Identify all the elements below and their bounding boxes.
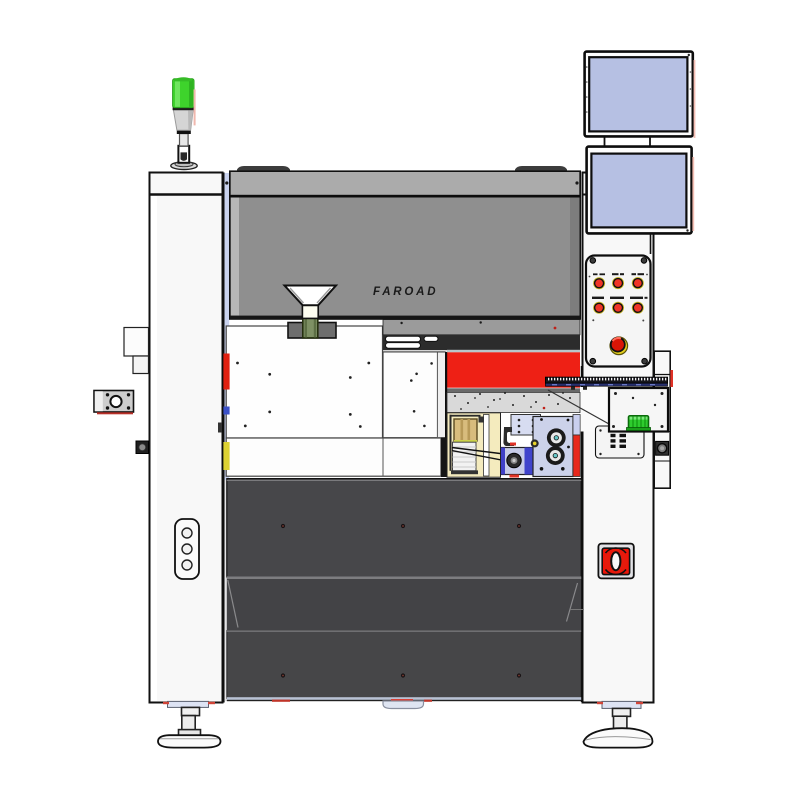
svg-text:FAROAD: FAROAD xyxy=(373,286,438,298)
